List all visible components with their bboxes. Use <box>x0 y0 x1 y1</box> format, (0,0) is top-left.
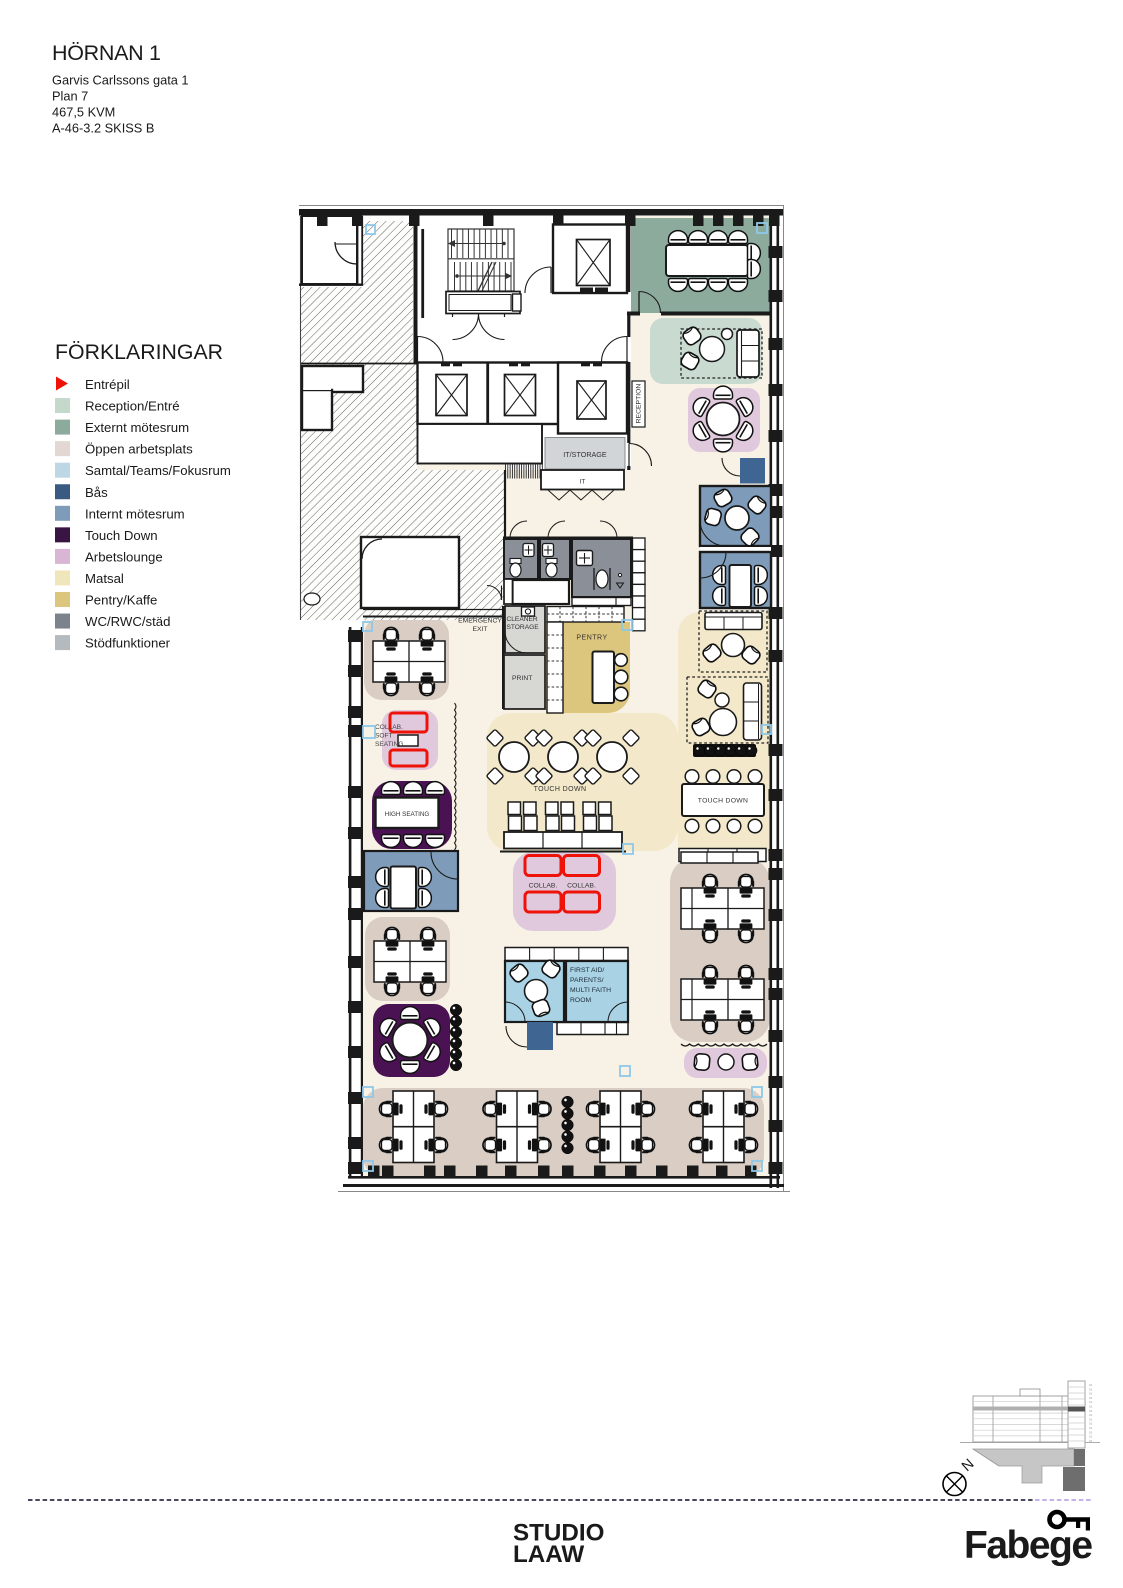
svg-text:CLEANER: CLEANER <box>507 616 538 623</box>
svg-text:Bås: Bås <box>85 485 108 500</box>
svg-text:Entrépil: Entrépil <box>85 377 130 392</box>
svg-text:Touch Down: Touch Down <box>85 528 158 543</box>
svg-text:Matsal: Matsal <box>85 571 124 586</box>
svg-text:Garvis Carlssons gata 1: Garvis Carlssons gata 1 <box>52 73 189 88</box>
svg-text:FIRST AID/: FIRST AID/ <box>570 967 604 974</box>
svg-text:FÖRKLARINGAR: FÖRKLARINGAR <box>55 340 223 364</box>
svg-text:COLLAB.: COLLAB. <box>375 724 403 731</box>
svg-text:HÖRNAN 1: HÖRNAN 1 <box>52 41 161 65</box>
svg-text:TOUCH DOWN: TOUCH DOWN <box>698 798 748 805</box>
svg-text:Arbetslounge: Arbetslounge <box>85 549 163 564</box>
svg-text:HIGH SEATING: HIGH SEATING <box>385 811 430 818</box>
svg-text:Pentry/Kaffe: Pentry/Kaffe <box>85 593 157 608</box>
svg-text:467,5 KVM: 467,5 KVM <box>52 105 115 120</box>
svg-text:IT/STORAGE: IT/STORAGE <box>563 450 607 459</box>
svg-text:TOUCH DOWN: TOUCH DOWN <box>534 786 587 793</box>
svg-text:Stödfunktioner: Stödfunktioner <box>85 636 171 651</box>
svg-text:PRINT: PRINT <box>512 675 532 682</box>
svg-text:COLLAB.: COLLAB. <box>567 883 596 890</box>
svg-text:A-46-3.2 SKISS B: A-46-3.2 SKISS B <box>52 121 154 136</box>
svg-text:COLLAB.: COLLAB. <box>529 883 558 890</box>
svg-text:SEATING: SEATING <box>375 741 403 748</box>
svg-text:Fabege: Fabege <box>964 1524 1092 1567</box>
svg-text:IT: IT <box>580 479 586 486</box>
svg-text:SOFT: SOFT <box>375 733 393 740</box>
svg-text:MULTI FAITH: MULTI FAITH <box>570 987 611 994</box>
svg-text:PENTRY: PENTRY <box>576 635 607 642</box>
svg-text:PARENTS/: PARENTS/ <box>570 977 604 984</box>
svg-text:ROOM: ROOM <box>570 997 591 1004</box>
svg-text:Externt mötesrum: Externt mötesrum <box>85 420 189 435</box>
svg-text:LAAW: LAAW <box>513 1541 584 1568</box>
svg-text:Öppen arbetsplats: Öppen arbetsplats <box>85 442 193 457</box>
svg-text:EMERGENCY: EMERGENCY <box>458 618 502 625</box>
svg-text:Reception/Entré: Reception/Entré <box>85 399 180 414</box>
svg-text:Samtal/Teams/Fokusrum: Samtal/Teams/Fokusrum <box>85 463 231 478</box>
svg-text:Internt mötesrum: Internt mötesrum <box>85 506 185 521</box>
svg-text:01: 01 <box>1089 1439 1093 1443</box>
svg-text:STORAGE: STORAGE <box>507 624 540 631</box>
svg-text:N: N <box>959 1456 977 1475</box>
svg-text:WC/RWC/städ: WC/RWC/städ <box>85 614 170 629</box>
svg-text:EXIT: EXIT <box>472 626 487 633</box>
svg-text:RECEPTION: RECEPTION <box>636 384 643 424</box>
svg-text:Plan 7: Plan 7 <box>52 89 88 104</box>
